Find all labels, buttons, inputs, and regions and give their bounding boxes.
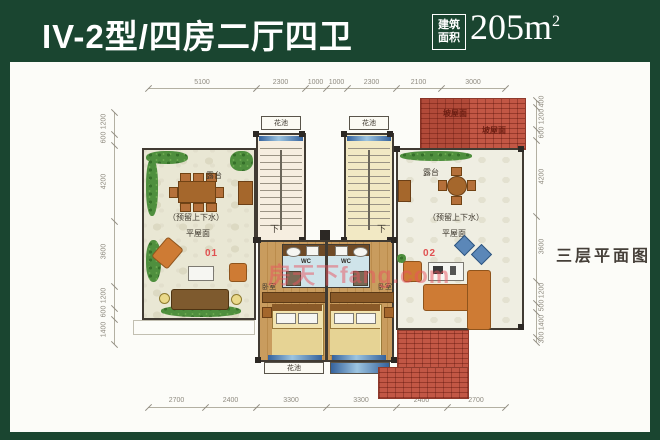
blanket: [330, 328, 380, 355]
unit-number-01: 01: [205, 248, 218, 259]
pillow: [276, 313, 296, 324]
wall-column: [518, 324, 524, 330]
dining-chair: [180, 203, 191, 212]
flower-box-label: 花池: [362, 118, 376, 128]
sloped-roof-bottom-upper: [397, 330, 469, 370]
dim-line-right: [536, 100, 537, 342]
dim-left-2: 4200: [101, 167, 108, 197]
floor-lamp: [231, 294, 242, 305]
dim-bottom-2: 3300: [256, 397, 326, 404]
flower-bed-label: 花池: [287, 363, 301, 373]
reserved-label-right: （预留上下水）: [420, 212, 492, 223]
terrace-label-right: 露台: [423, 167, 439, 178]
flatroof-label-left: 平屋面: [186, 228, 210, 239]
area-value: 205m2: [470, 6, 560, 48]
toilet: [306, 246, 319, 256]
wall-column: [518, 146, 524, 152]
bedroom-window-left: [268, 355, 322, 360]
dining-chair: [215, 187, 224, 198]
stair-down-left: 下: [270, 222, 279, 235]
floor-lamp: [159, 293, 170, 304]
dim-top-1: 2300: [256, 79, 305, 86]
dim-right-3: 4200: [539, 162, 546, 192]
roof-label-2: 坡屋面: [482, 125, 506, 136]
flower-box-label: 花池: [274, 118, 288, 128]
sofa-right-chaise: [467, 270, 491, 330]
wall-column: [391, 237, 397, 243]
wall-column: [394, 146, 400, 152]
dim-left-3: 3600: [101, 237, 108, 267]
dresser-left: [262, 292, 326, 303]
dim-line-top: [148, 88, 505, 89]
plant-left-edge: [146, 158, 158, 216]
terrace-cabinet: [398, 180, 411, 202]
area-label-bottom: 面积: [438, 32, 460, 45]
wall-column: [253, 131, 259, 137]
building-area-box: 建筑 面积: [432, 14, 466, 50]
pillow: [334, 313, 354, 324]
flower-box-stair-right: 花池: [349, 116, 389, 130]
wall-junction: [320, 230, 330, 240]
dim-top-2: 1000: [305, 79, 326, 86]
toilet: [335, 246, 348, 256]
dresser-right: [330, 292, 394, 303]
watermark: 房天下fang.com: [268, 256, 450, 290]
dim-bottom-1: 2400: [205, 397, 256, 404]
terrace-chair: [467, 180, 476, 191]
dining-chair: [169, 187, 178, 198]
dim-line-bottom: [148, 407, 505, 408]
dim-left-6: 1400: [101, 315, 108, 345]
bed-headboard: [330, 304, 380, 311]
wall-column: [387, 131, 393, 137]
wall-column: [299, 131, 305, 137]
dim-top-0: 5100: [148, 79, 256, 86]
flower-bed-left: 花池: [264, 362, 324, 374]
bench: [238, 181, 253, 205]
stair-window-right: [347, 136, 391, 141]
terrace-label-left: 露台: [206, 170, 222, 181]
reserved-label-left: （预留上下水）: [160, 212, 232, 223]
sofa-left-unit: [171, 289, 229, 310]
dim-line-left: [114, 112, 115, 344]
page-title: IV-2型/四房二厅四卫: [42, 10, 353, 58]
wall-column: [255, 357, 261, 363]
round-table: [447, 176, 467, 196]
dim-left-1: 600: [101, 123, 108, 153]
stair-window-left: [259, 136, 303, 141]
stair-down-right: 下: [377, 222, 386, 235]
dim-right-2: 600: [539, 118, 546, 148]
wall-column: [255, 237, 261, 243]
dim-top-6: 3000: [441, 79, 505, 86]
terrace-chair: [451, 167, 462, 176]
dim-right-8: 300: [539, 323, 546, 353]
dining-chair: [193, 173, 204, 182]
pillow: [298, 313, 318, 324]
stair-runner-right: [368, 150, 370, 230]
dim-bottom-0: 2700: [148, 397, 205, 404]
floorplan-page: IV-2型/四房二厅四卫 建筑 面积 205m2 5100 2300 1000 …: [0, 0, 660, 440]
area-label-top: 建筑: [438, 19, 460, 32]
roof-label-1: 坡屋面: [443, 108, 467, 119]
floor-note: 三层平面图: [556, 242, 651, 266]
armchair-left-unit: [229, 263, 247, 282]
nightstand: [262, 307, 272, 318]
speaker: [450, 266, 456, 275]
nightstand: [384, 307, 394, 318]
coffee-table: [188, 266, 214, 281]
wall-column: [341, 131, 347, 137]
dining-chair: [193, 203, 204, 212]
bed-headboard: [272, 304, 322, 311]
flower-box-stair-left: 花池: [261, 116, 301, 130]
terrace-chair: [451, 196, 462, 205]
plant-right-top: [400, 151, 472, 161]
dim-top-3: 1000: [326, 79, 347, 86]
area-exponent: 2: [552, 13, 560, 30]
stair-runner-left: [280, 150, 282, 230]
sloped-roof-bottom-lower: [378, 367, 469, 399]
dining-chair: [206, 203, 217, 212]
pillow: [356, 313, 376, 324]
eave-outline-left: [133, 320, 255, 335]
dim-right-4: 3600: [539, 232, 546, 262]
sloped-roof-shade: [420, 98, 470, 148]
dining-table: [178, 181, 216, 203]
blanket: [272, 328, 322, 355]
dim-top-5: 2100: [396, 79, 441, 86]
plant-left-corner: [230, 151, 253, 171]
bedroom-window-right: [332, 355, 386, 360]
dining-chair: [180, 173, 191, 182]
terrace-chair: [438, 180, 447, 191]
dim-top-4: 2300: [347, 79, 396, 86]
